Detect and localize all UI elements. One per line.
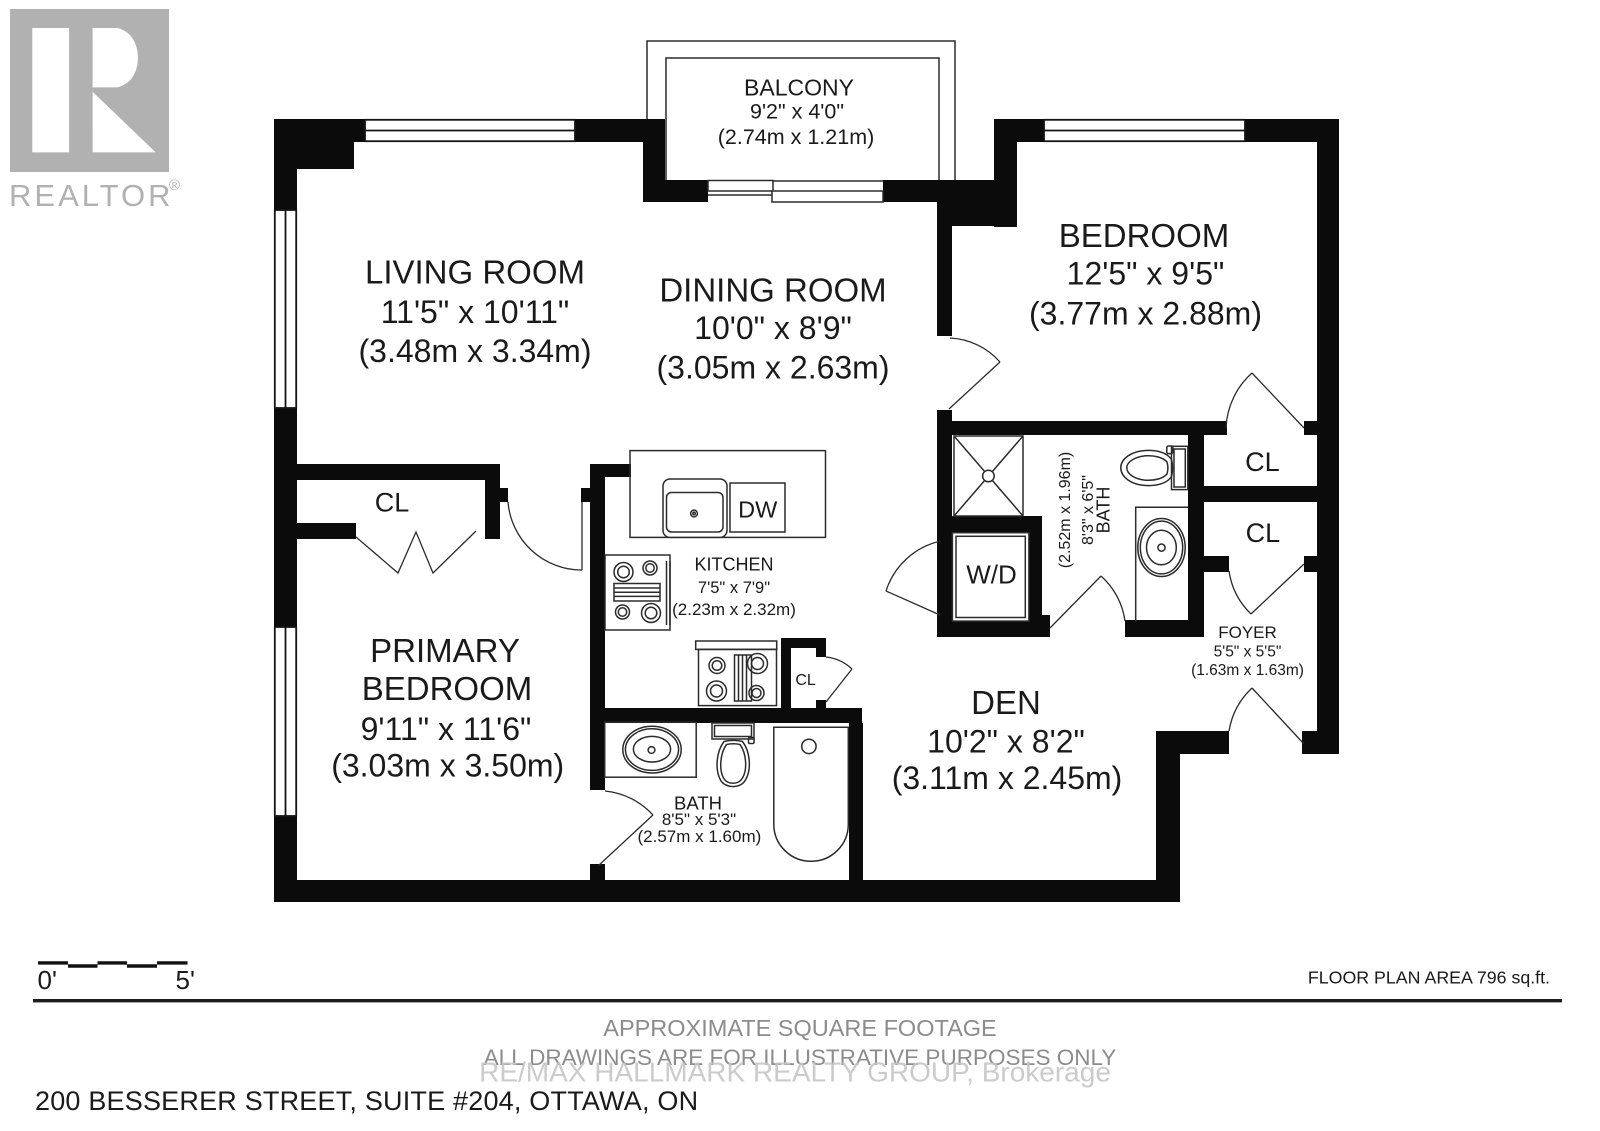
svg-text:9'2" x 4'0": 9'2" x 4'0"	[750, 100, 844, 124]
svg-text:(2.52m x 1.96m): (2.52m x 1.96m)	[1057, 452, 1074, 568]
svg-text:12'5" x 9'5": 12'5" x 9'5"	[1067, 256, 1225, 292]
svg-text:(2.74m x 1.21m): (2.74m x 1.21m)	[718, 125, 875, 149]
svg-text:DINING ROOM: DINING ROOM	[659, 272, 886, 309]
svg-text:®: ®	[169, 177, 180, 194]
svg-text:BEDROOM: BEDROOM	[1059, 217, 1230, 254]
svg-text:DEN: DEN	[971, 684, 1041, 721]
svg-text:11'5" x 10'11": 11'5" x 10'11"	[381, 294, 570, 330]
svg-text:DW: DW	[738, 497, 778, 523]
svg-text:(3.77m x 2.88m): (3.77m x 2.88m)	[1029, 296, 1262, 332]
svg-text:0': 0'	[38, 965, 57, 995]
svg-text:FLOOR PLAN AREA 796 sq.ft.: FLOOR PLAN AREA 796 sq.ft.	[1308, 968, 1550, 988]
svg-text:BALCONY: BALCONY	[744, 74, 854, 100]
svg-text:FOYER: FOYER	[1218, 623, 1277, 642]
svg-text:REALTOR: REALTOR	[9, 178, 174, 213]
svg-text:RE/MAX HALLMARK REALTY GROUP,: RE/MAX HALLMARK REALTY GROUP, Brokerage	[479, 1057, 1111, 1088]
svg-text:10'2" x 8'2": 10'2" x 8'2"	[927, 724, 1085, 760]
svg-text:(2.57m x 1.60m): (2.57m x 1.60m)	[638, 827, 762, 846]
svg-text:10'0" x 8'9": 10'0" x 8'9"	[694, 310, 852, 346]
svg-text:200 BESSERER STREET, SUITE #20: 200 BESSERER STREET, SUITE #204, OTTAWA,…	[35, 1086, 698, 1116]
svg-text:KITCHEN: KITCHEN	[694, 554, 773, 574]
svg-text:LIVING ROOM: LIVING ROOM	[365, 254, 585, 291]
svg-text:CL: CL	[1245, 447, 1280, 477]
svg-text:APPROXIMATE SQUARE FOOTAGE: APPROXIMATE SQUARE FOOTAGE	[603, 1015, 996, 1041]
svg-text:CL: CL	[795, 672, 816, 689]
svg-text:(3.11m x 2.45m): (3.11m x 2.45m)	[892, 760, 1123, 796]
svg-text:5'5" x 5'5": 5'5" x 5'5"	[1214, 644, 1282, 661]
svg-text:(3.48m x 3.34m): (3.48m x 3.34m)	[359, 333, 592, 369]
svg-text:8'3" x 6'5": 8'3" x 6'5"	[1080, 475, 1097, 545]
svg-text:5': 5'	[176, 965, 195, 995]
svg-text:PRIMARY: PRIMARY	[370, 632, 520, 669]
svg-text:(1.63m x 1.63m): (1.63m x 1.63m)	[1191, 662, 1304, 679]
svg-text:7'5" x 7'9": 7'5" x 7'9"	[698, 579, 770, 597]
svg-text:9'11" x 11'6": 9'11" x 11'6"	[361, 711, 532, 747]
svg-text:(3.03m x 3.50m): (3.03m x 3.50m)	[331, 748, 564, 784]
svg-text:(2.23m x 2.32m): (2.23m x 2.32m)	[672, 600, 796, 619]
svg-text:CL: CL	[1246, 518, 1281, 548]
svg-text:BEDROOM: BEDROOM	[362, 670, 533, 707]
svg-text:CL: CL	[375, 488, 410, 518]
svg-text:(3.05m x 2.63m): (3.05m x 2.63m)	[657, 350, 890, 386]
svg-text:W/D: W/D	[966, 560, 1017, 590]
